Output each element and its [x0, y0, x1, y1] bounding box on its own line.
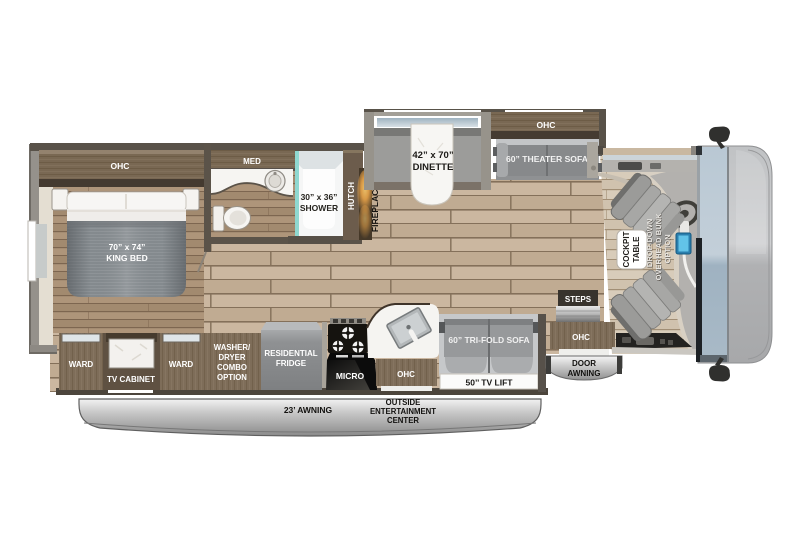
svg-text:OPTION: OPTION: [663, 234, 672, 263]
svg-text:KING BED: KING BED: [106, 253, 148, 263]
svg-text:OHC: OHC: [537, 120, 556, 130]
svg-text:50’’ TV LIFT: 50’’ TV LIFT: [466, 378, 514, 388]
svg-text:COMBO: COMBO: [217, 363, 247, 372]
svg-text:OHC: OHC: [572, 333, 590, 342]
svg-text:30” x 36”: 30” x 36”: [301, 192, 338, 202]
svg-text:RESIDENTIAL: RESIDENTIAL: [264, 349, 317, 358]
svg-text:WASHER/: WASHER/: [214, 343, 251, 352]
svg-text:70” x 74”: 70” x 74”: [109, 242, 146, 252]
svg-text:OHC: OHC: [397, 370, 415, 379]
svg-text:WARD: WARD: [169, 360, 194, 369]
svg-text:OHC: OHC: [111, 161, 130, 171]
svg-text:60” TRI-FOLD SOFA: 60” TRI-FOLD SOFA: [448, 335, 529, 345]
svg-text:ENTERTAINMENT: ENTERTAINMENT: [370, 407, 436, 416]
svg-text:TABLE: TABLE: [632, 236, 641, 263]
svg-text:60” THEATER SOFA: 60” THEATER SOFA: [506, 154, 588, 164]
svg-text:WARD: WARD: [69, 360, 94, 369]
svg-text:OUTSIDE: OUTSIDE: [386, 398, 421, 407]
svg-text:COCKPIT: COCKPIT: [622, 231, 631, 267]
svg-text:CENTER: CENTER: [387, 416, 419, 425]
svg-text:FRIDGE: FRIDGE: [276, 359, 307, 368]
svg-text:23’ AWNING: 23’ AWNING: [284, 405, 333, 415]
svg-text:DOOR: DOOR: [572, 359, 596, 368]
svg-text:42” x 70”: 42” x 70”: [412, 150, 453, 161]
svg-text:AWNING: AWNING: [568, 369, 601, 378]
svg-text:DRYER: DRYER: [218, 353, 245, 362]
svg-text:HUTCH: HUTCH: [347, 182, 356, 210]
svg-text:OPTION: OPTION: [217, 373, 247, 382]
svg-text:STEPS: STEPS: [565, 295, 592, 304]
svg-text:TV CABINET: TV CABINET: [107, 375, 155, 384]
svg-text:FIREPLACE: FIREPLACE: [370, 184, 380, 233]
svg-text:DROP-DOWN: DROP-DOWN: [645, 219, 654, 268]
svg-text:MED: MED: [243, 157, 261, 166]
svg-text:OVERHEAD BUNK: OVERHEAD BUNK: [654, 213, 663, 281]
svg-text:SHOWER: SHOWER: [300, 203, 338, 213]
svg-text:MICRO: MICRO: [336, 371, 365, 381]
svg-text:DINETTE: DINETTE: [413, 162, 454, 173]
